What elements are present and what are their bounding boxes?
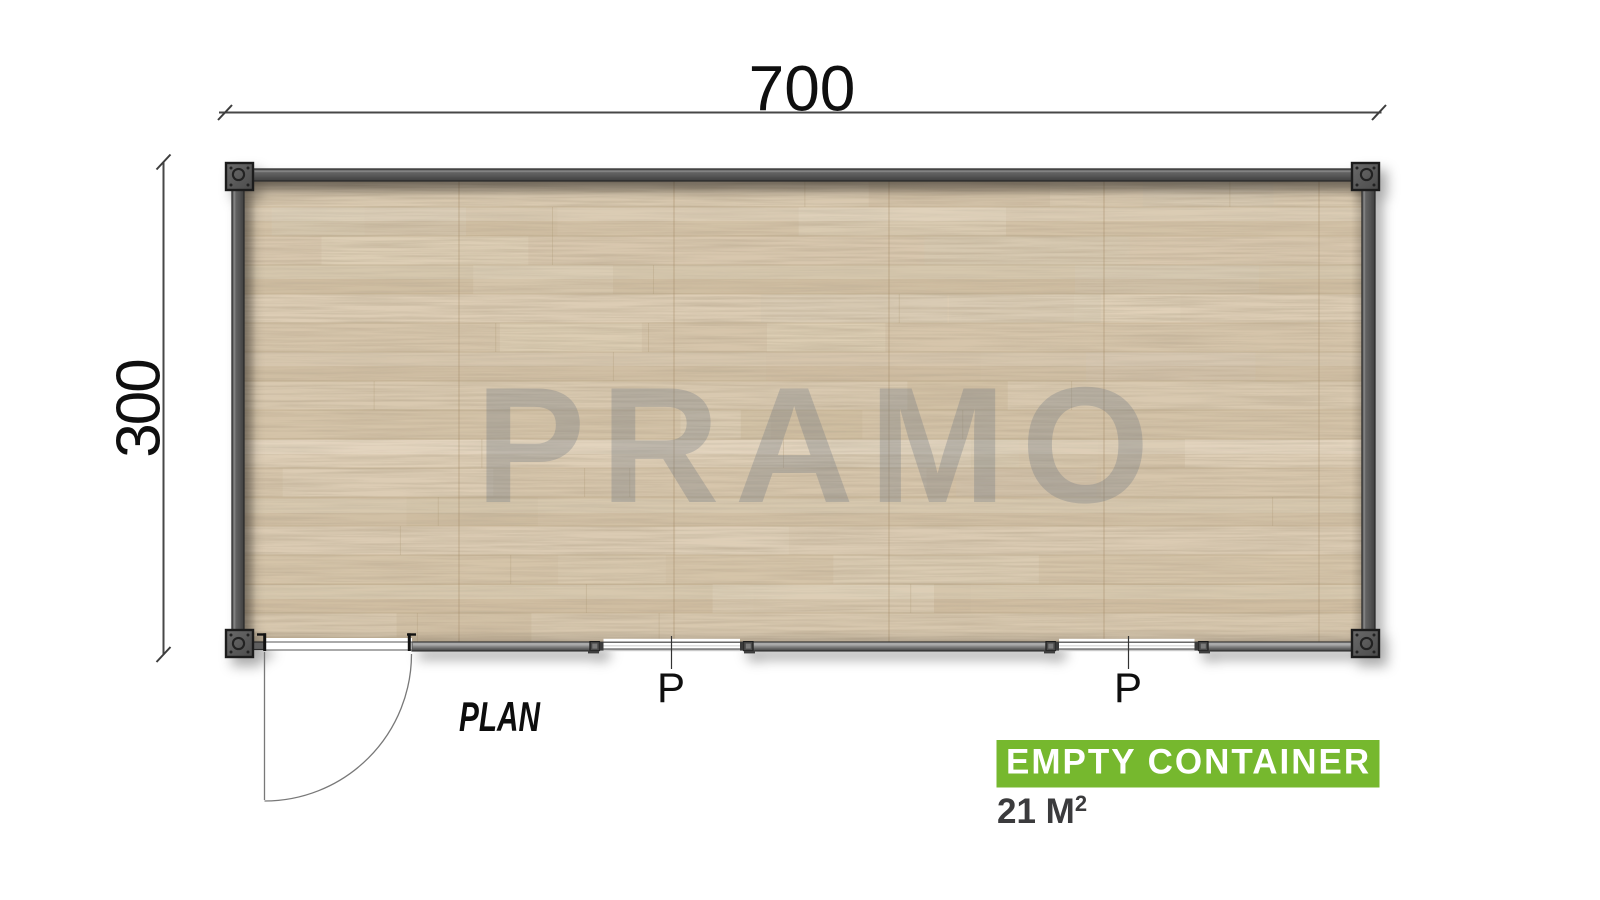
svg-text:PLAN: PLAN [459,693,541,740]
svg-text:EMPTY CONTAINER: EMPTY CONTAINER [1006,743,1371,782]
svg-text:P: P [657,664,685,711]
svg-text:700: 700 [749,53,856,125]
svg-text:300: 300 [105,360,174,458]
svg-text:P: P [1114,664,1142,711]
svg-text:21 M2: 21 M2 [997,791,1087,831]
svg-text:PRAMO: PRAMO [475,353,1164,537]
